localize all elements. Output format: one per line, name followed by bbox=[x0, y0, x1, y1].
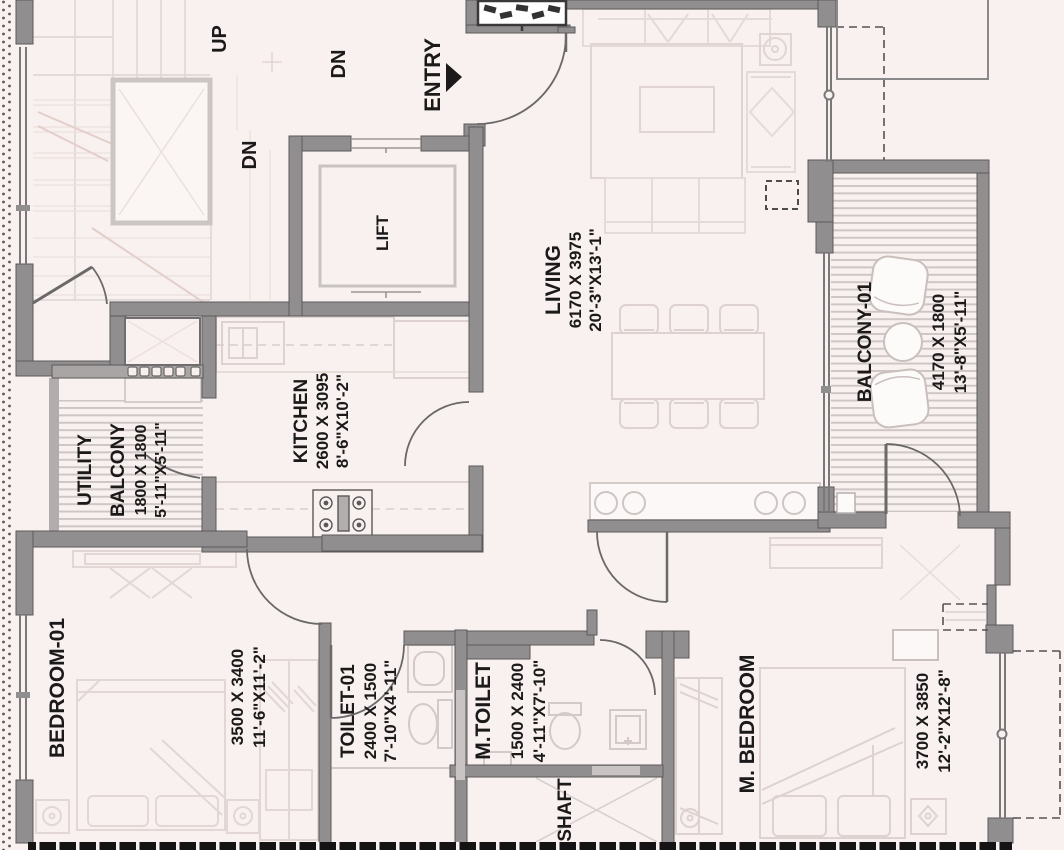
svg-text:11'-6"X11'-2": 11'-6"X11'-2" bbox=[250, 646, 269, 748]
svg-text:5'-11"X5'-11": 5'-11"X5'-11" bbox=[153, 422, 170, 518]
svg-text:4170 X 1800: 4170 X 1800 bbox=[929, 294, 948, 390]
svg-text:M.TOILET: M.TOILET bbox=[472, 662, 495, 760]
svg-text:LIFT: LIFT bbox=[373, 214, 392, 250]
svg-text:2600 X 3095: 2600 X 3095 bbox=[313, 373, 332, 469]
svg-text:2400 X 1500: 2400 X 1500 bbox=[361, 663, 380, 759]
svg-text:LIVING: LIVING bbox=[542, 245, 565, 315]
svg-text:3700 X 3850: 3700 X 3850 bbox=[913, 673, 932, 769]
svg-text:13'-8"X5'-11": 13'-8"X5'-11" bbox=[951, 291, 970, 394]
svg-text:DN: DN bbox=[328, 50, 350, 79]
svg-text:UP: UP bbox=[209, 25, 231, 53]
svg-text:BALCONY: BALCONY bbox=[108, 423, 129, 517]
svg-text:1800 X 1800: 1800 X 1800 bbox=[133, 425, 150, 516]
svg-text:1500 X 2400: 1500 X 2400 bbox=[508, 663, 527, 759]
svg-text:BEDROOM-01: BEDROOM-01 bbox=[46, 618, 69, 758]
svg-text:TOILET-01: TOILET-01 bbox=[338, 664, 359, 758]
svg-text:7'-10"X4'-11": 7'-10"X4'-11" bbox=[381, 660, 400, 763]
svg-text:20'-3"X13'-1": 20'-3"X13'-1" bbox=[586, 228, 605, 332]
svg-text:12'-2"X12'-8": 12'-2"X12'-8" bbox=[935, 669, 954, 773]
svg-text:3500 X 3400: 3500 X 3400 bbox=[228, 649, 247, 745]
svg-text:BALCONY-01: BALCONY-01 bbox=[855, 281, 876, 402]
svg-text:M. BEDROOM: M. BEDROOM bbox=[736, 655, 759, 794]
svg-text:UTILITY: UTILITY bbox=[75, 434, 96, 506]
svg-text:DN: DN bbox=[239, 141, 261, 170]
svg-text:4'-11"X7'-10": 4'-11"X7'-10" bbox=[530, 660, 549, 763]
svg-text:SHAFT: SHAFT bbox=[555, 778, 576, 842]
svg-text:8'-6"X10'-2": 8'-6"X10'-2" bbox=[333, 374, 352, 468]
svg-text:KITCHEN: KITCHEN bbox=[291, 379, 312, 463]
svg-text:ENTRY: ENTRY bbox=[420, 38, 445, 112]
svg-text:6170 X 3975: 6170 X 3975 bbox=[566, 232, 585, 328]
